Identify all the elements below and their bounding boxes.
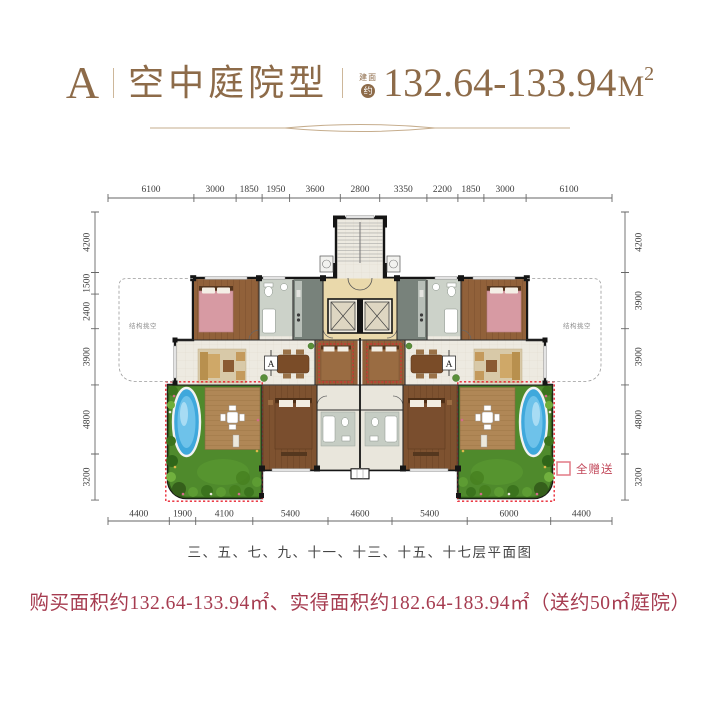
area-badge-label: 建面 <box>359 74 377 82</box>
area-badge: 建面 约 <box>359 74 377 98</box>
dim-bottom-4: 4600 <box>351 510 370 520</box>
sofa <box>208 354 220 378</box>
dim-right-0: 4200 <box>635 233 645 252</box>
dining-table <box>277 355 309 373</box>
void-label-right: 结构挑空 <box>563 321 591 330</box>
master-bed <box>275 403 312 449</box>
dim-top-4: 3600 <box>306 185 325 195</box>
area-exponent: 2 <box>644 63 654 86</box>
unit-letter: A <box>66 60 99 106</box>
area-unit: M <box>617 70 644 104</box>
dim-left-4: 4800 <box>83 410 93 429</box>
dim-left-3: 3900 <box>83 347 93 366</box>
dim-bottom-6: 6000 <box>500 510 519 520</box>
dim-right-1: 3900 <box>635 291 645 310</box>
dim-bottom-7: 4400 <box>572 510 591 520</box>
bottom-stub <box>351 469 369 479</box>
dim-top-8: 1850 <box>461 185 480 195</box>
area-note: 购买面积约132.64-133.94㎡、实得面积约182.64-183.94㎡（… <box>0 586 720 615</box>
dim-bottom-1: 1900 <box>173 510 192 520</box>
dim-bottom-5: 5400 <box>420 510 439 520</box>
dim-right <box>621 212 629 500</box>
area-value: 132.64-133.94 <box>383 63 616 103</box>
dim-top-9: 3000 <box>496 185 515 195</box>
dim-top-5: 2800 <box>351 185 370 195</box>
area-value-group: 132.64-133.94 M 2 <box>383 63 654 104</box>
unit-type-title: 空中庭院型 <box>128 65 328 101</box>
legend: 全赠送 <box>557 462 614 476</box>
dim-top-3: 1950 <box>266 185 285 195</box>
header: A 空中庭院型 建面 约 132.64-133.94 M 2 <box>0 52 720 114</box>
svg-text:A: A <box>446 360 453 370</box>
bathtub <box>263 309 276 333</box>
dim-right-2: 3900 <box>635 347 645 366</box>
dim-top-2: 1850 <box>240 185 259 195</box>
legend-swatch-icon <box>557 462 570 475</box>
marquise-shape <box>285 125 435 132</box>
dim-bottom-2: 4100 <box>215 510 234 520</box>
approx-circle-icon: 约 <box>361 84 375 98</box>
dim-top-1: 3000 <box>206 185 225 195</box>
courtyard <box>166 382 262 501</box>
patio-table <box>227 412 238 423</box>
header-divider-bar <box>113 68 114 98</box>
dim-left-2: 2400 <box>83 302 93 321</box>
ornament-divider <box>150 119 570 137</box>
void-label-left: 结构挑空 <box>129 321 157 330</box>
floor-caption: 三、五、七、九、十一、十三、十五、十七层平面图 <box>0 541 720 561</box>
dim-right-3: 4800 <box>635 410 645 429</box>
dim-left-1: 1500 <box>83 274 93 293</box>
dim-left-0: 4200 <box>83 233 93 252</box>
dim-right-4: 3200 <box>635 467 645 486</box>
svg-text:A: A <box>268 360 275 370</box>
dim-top-10: 6100 <box>560 185 579 195</box>
plant <box>261 375 268 382</box>
dim-left-5: 3200 <box>83 467 93 486</box>
dim-top <box>108 194 612 202</box>
dim-bottom-0: 4400 <box>129 510 148 520</box>
dim-bottom-3: 5400 <box>281 510 300 520</box>
header-divider-bar-2 <box>342 68 343 98</box>
floor-plan: 结构挑空 结构挑空 A A 全赠送 6100 3000 1850 1950 <box>65 160 655 535</box>
bed <box>199 291 233 332</box>
dim-top-6: 3350 <box>394 185 413 195</box>
dim-top-0: 6100 <box>142 185 161 195</box>
dim-top-7: 2200 <box>433 185 452 195</box>
flyer-page: A 空中庭院型 建面 约 132.64-133.94 M 2 <box>0 0 720 720</box>
elevator-core <box>328 299 392 333</box>
legend-label: 全赠送 <box>576 462 614 476</box>
